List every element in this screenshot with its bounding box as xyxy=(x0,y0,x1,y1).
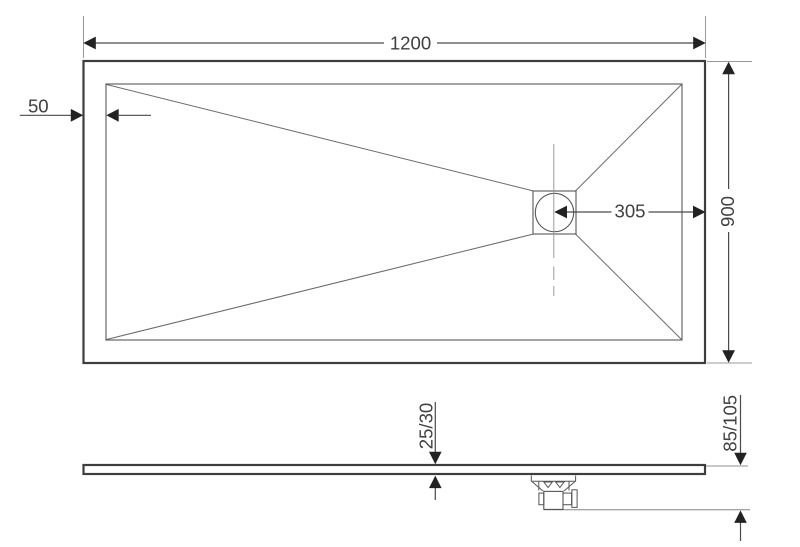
svg-text:1200: 1200 xyxy=(390,33,431,54)
svg-text:25/30: 25/30 xyxy=(416,403,437,450)
svg-text:50: 50 xyxy=(28,96,49,117)
svg-text:900: 900 xyxy=(717,196,738,227)
svg-text:305: 305 xyxy=(614,201,645,222)
svg-text:85/105: 85/105 xyxy=(720,395,741,452)
